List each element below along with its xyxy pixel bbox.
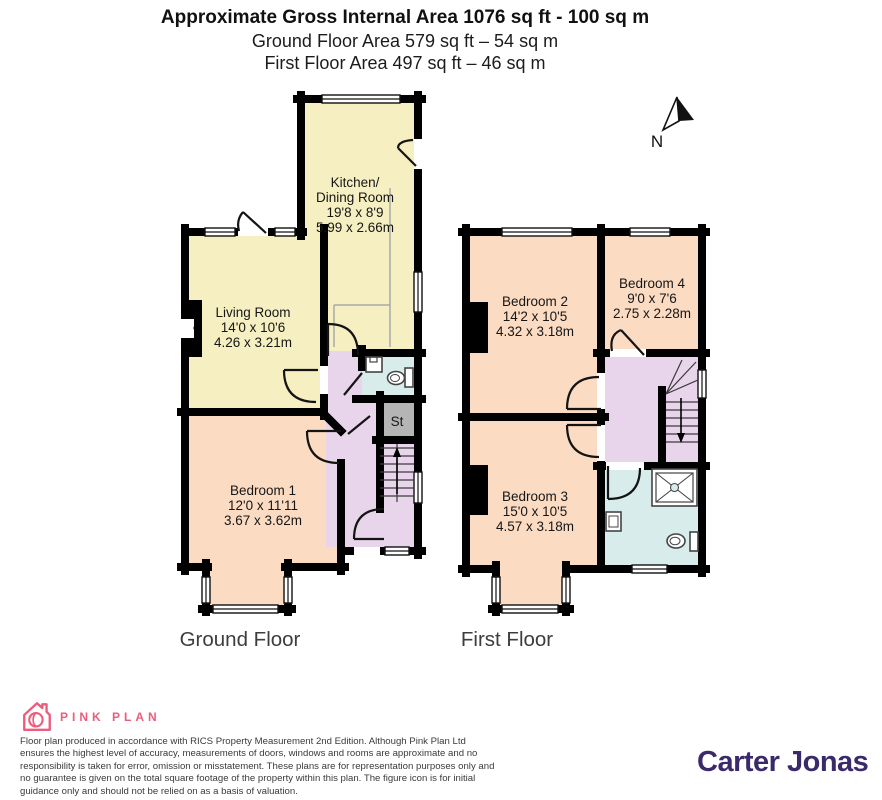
- room-dimensions: 2.75 x 2.28m: [613, 306, 691, 321]
- room-dimensions: 15'0 x 10'5: [503, 504, 567, 519]
- room-label: Bedroom 1: [230, 483, 296, 498]
- room-label: Living Room: [215, 305, 290, 320]
- store-label: St: [391, 414, 404, 429]
- room-dimensions: 5.99 x 2.66m: [316, 220, 394, 235]
- north-arrow: N: [651, 97, 694, 151]
- door-opening: [606, 462, 644, 470]
- fireplace-icon: [193, 325, 198, 330]
- room-label: Bedroom 2: [502, 294, 568, 309]
- toilet-cistern-icon: [405, 368, 413, 387]
- ground-floor-plan: Kitchen/ Dining Room 19'8 x 8'9 5.99 x 2…: [180, 95, 422, 651]
- north-arrow-icon: [663, 97, 679, 130]
- room-dimensions: 3.67 x 3.62m: [224, 513, 302, 528]
- bedroom-1-bay: [210, 563, 284, 607]
- room-label: Kitchen/: [331, 175, 380, 190]
- door-opening: [597, 373, 605, 409]
- sink-icon: [366, 357, 382, 372]
- floorplan-drawing: Kitchen/ Dining Room 19'8 x 8'9 5.99 x 2…: [0, 0, 882, 690]
- room-label: Dining Room: [316, 190, 394, 205]
- room-dimensions: 19'8 x 8'9: [327, 205, 384, 220]
- shower-drain-icon: [671, 484, 679, 492]
- room-dimensions: 14'0 x 10'6: [221, 320, 285, 335]
- door-opening: [354, 547, 380, 555]
- floorplan-page: Approximate Gross Internal Area 1076 sq …: [0, 0, 882, 800]
- toilet-cistern-icon: [690, 532, 698, 551]
- north-label: N: [651, 132, 663, 151]
- room-dimensions: 4.32 x 3.18m: [496, 324, 574, 339]
- sink-icon: [606, 512, 621, 531]
- pink-plan-brand: PINK PLAN: [60, 710, 161, 724]
- first-floor-caption: First Floor: [461, 628, 553, 651]
- first-floor-plan: Bedroom 2 14'2 x 10'5 4.32 x 3.18m Bedro…: [461, 228, 706, 651]
- room-dimensions: 4.57 x 3.18m: [496, 519, 574, 534]
- door-opening: [597, 425, 605, 461]
- fireplace-alcove: [181, 319, 194, 338]
- ground-floor-caption: Ground Floor: [180, 628, 301, 651]
- room-dimensions: 12'0 x 11'11: [228, 498, 298, 513]
- room-dimensions: 14'2 x 10'5: [503, 309, 567, 324]
- room-label: Bedroom 4: [619, 276, 686, 291]
- room-dimensions: 4.26 x 3.21m: [214, 335, 292, 350]
- hallway: [328, 351, 358, 399]
- disclaimer-text: Floor plan produced in accordance with R…: [20, 736, 498, 798]
- room-label: Bedroom 3: [502, 489, 568, 504]
- chimney-breast: [462, 302, 488, 353]
- bedroom-3-bay: [500, 565, 562, 607]
- chimney-breast: [462, 465, 488, 515]
- pink-plan-logo-icon: [20, 699, 54, 733]
- carter-jonas-logo: Carter Jonas: [697, 746, 868, 779]
- north-arrow-icon: [677, 97, 694, 121]
- room-dimensions: 9'0 x 7'6: [627, 291, 676, 306]
